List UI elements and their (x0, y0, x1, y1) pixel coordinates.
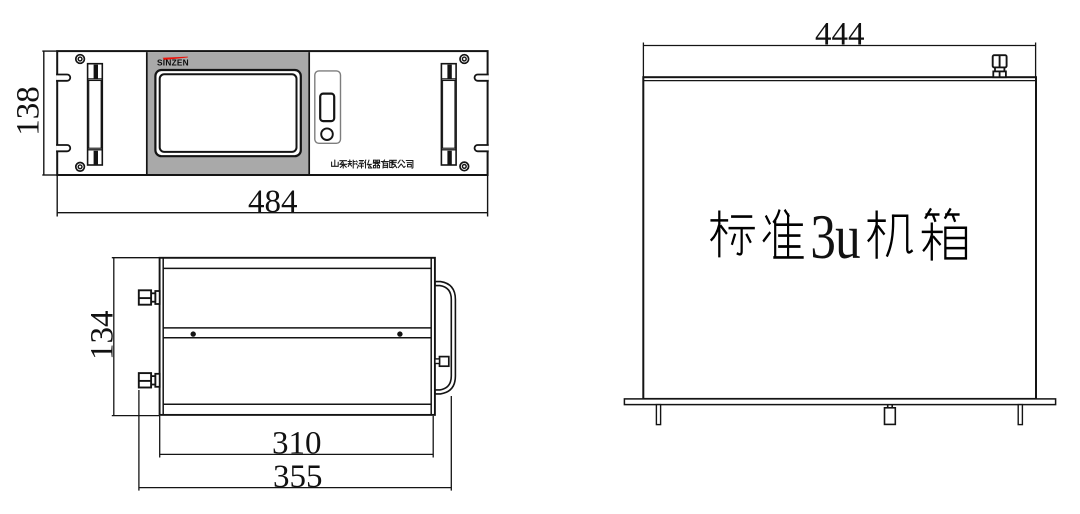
svg-text:138: 138 (11, 86, 47, 136)
svg-text:134: 134 (85, 311, 121, 361)
svg-text:444: 444 (815, 17, 865, 53)
svg-text:484: 484 (248, 184, 298, 220)
svg-text:SINZEN: SINZEN (157, 58, 189, 68)
svg-text:355: 355 (273, 459, 323, 495)
svg-text:310: 310 (272, 426, 322, 462)
svg-text:3u: 3u (810, 203, 860, 272)
